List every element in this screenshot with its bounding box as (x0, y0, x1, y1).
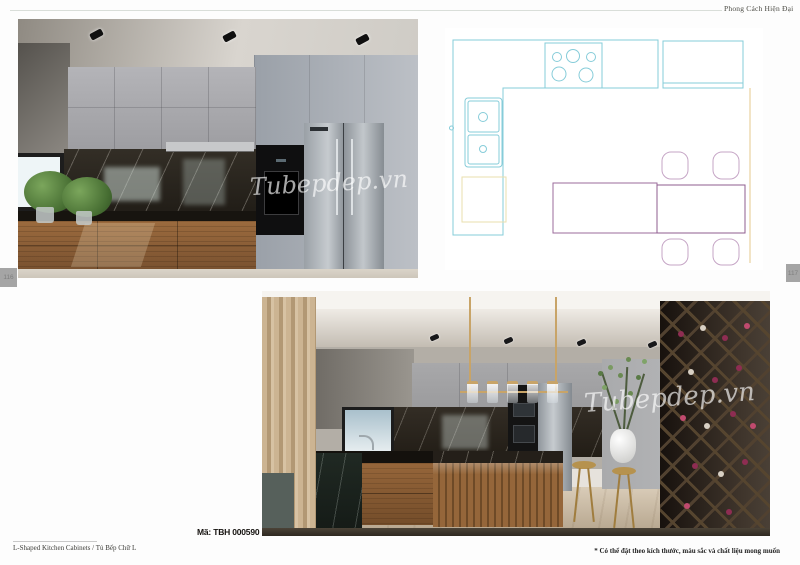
page-number-right: 117 (786, 264, 800, 282)
fridge-handle (351, 139, 353, 215)
floor-dark-strip (262, 528, 770, 536)
stainless-fridge (304, 123, 384, 269)
wine-rack (660, 301, 770, 536)
pendant-shade (547, 381, 558, 403)
footer-category-label: L-Shaped Kitchen Cabinets / Tủ Bếp Chữ L (13, 544, 136, 552)
fridge-logo (310, 127, 328, 131)
plant-vase (36, 207, 54, 223)
island-marble-top (433, 451, 563, 463)
kitchen-render-top: Tubepdep.vn (18, 19, 418, 278)
floor-plan-svg (445, 28, 763, 270)
cooktop (545, 43, 602, 88)
curtain-fold (262, 473, 294, 536)
wine-bottles (678, 331, 684, 337)
upper-cabinets (68, 67, 256, 151)
backsplash-reflection (442, 415, 488, 449)
kitchen-island (553, 183, 657, 233)
wood-base-cabinets (362, 463, 437, 525)
left-cabinet-panel (18, 43, 70, 155)
double-sink (450, 98, 503, 167)
pendant-shade (527, 381, 538, 403)
footer-rule (13, 541, 97, 542)
wall-cabinet-run (663, 41, 743, 88)
pendant-shade (487, 381, 498, 403)
counter-outline (453, 40, 658, 235)
dining-table (657, 185, 745, 233)
catalog-page: Phong Cách Hiện Đại 116 117 Tubepdep.vn (0, 0, 800, 565)
backsplash-reflection (183, 159, 225, 205)
kitchen-render-bottom: Tubepdep.vn (262, 291, 770, 536)
brass-stool (572, 461, 596, 469)
island-wood-base (433, 463, 563, 527)
brass-stool (612, 467, 636, 475)
dining-chairs (662, 152, 739, 265)
oven-door (513, 425, 535, 443)
plant-vase (76, 211, 92, 225)
leaves (614, 399, 619, 404)
oven-door (264, 171, 299, 215)
page-number-left: 116 (0, 268, 17, 287)
backsplash-reflection (104, 167, 160, 201)
marble-end-panel (314, 453, 362, 536)
header-style-title: Phong Cách Hiện Đại (724, 4, 793, 13)
pendant-shade (507, 381, 518, 403)
kitchen-floor-plan (445, 28, 763, 270)
fridge-handle (336, 139, 338, 215)
header-rule (10, 10, 722, 11)
product-code: Mã: TBH 000590 (197, 527, 259, 537)
range-hood (166, 142, 254, 152)
oven-display (513, 403, 535, 417)
white-vase (610, 429, 636, 463)
fridge-door-split (343, 123, 344, 269)
sunlight-patch (71, 223, 155, 267)
footer-customization-note: * Có thể đặt theo kích thước, màu sắc và… (594, 547, 780, 555)
oven-display (276, 159, 286, 162)
pendant-rod (555, 297, 557, 393)
fridge-box (462, 177, 506, 222)
pendant-rod (469, 297, 471, 393)
pendant-shade (467, 381, 478, 403)
